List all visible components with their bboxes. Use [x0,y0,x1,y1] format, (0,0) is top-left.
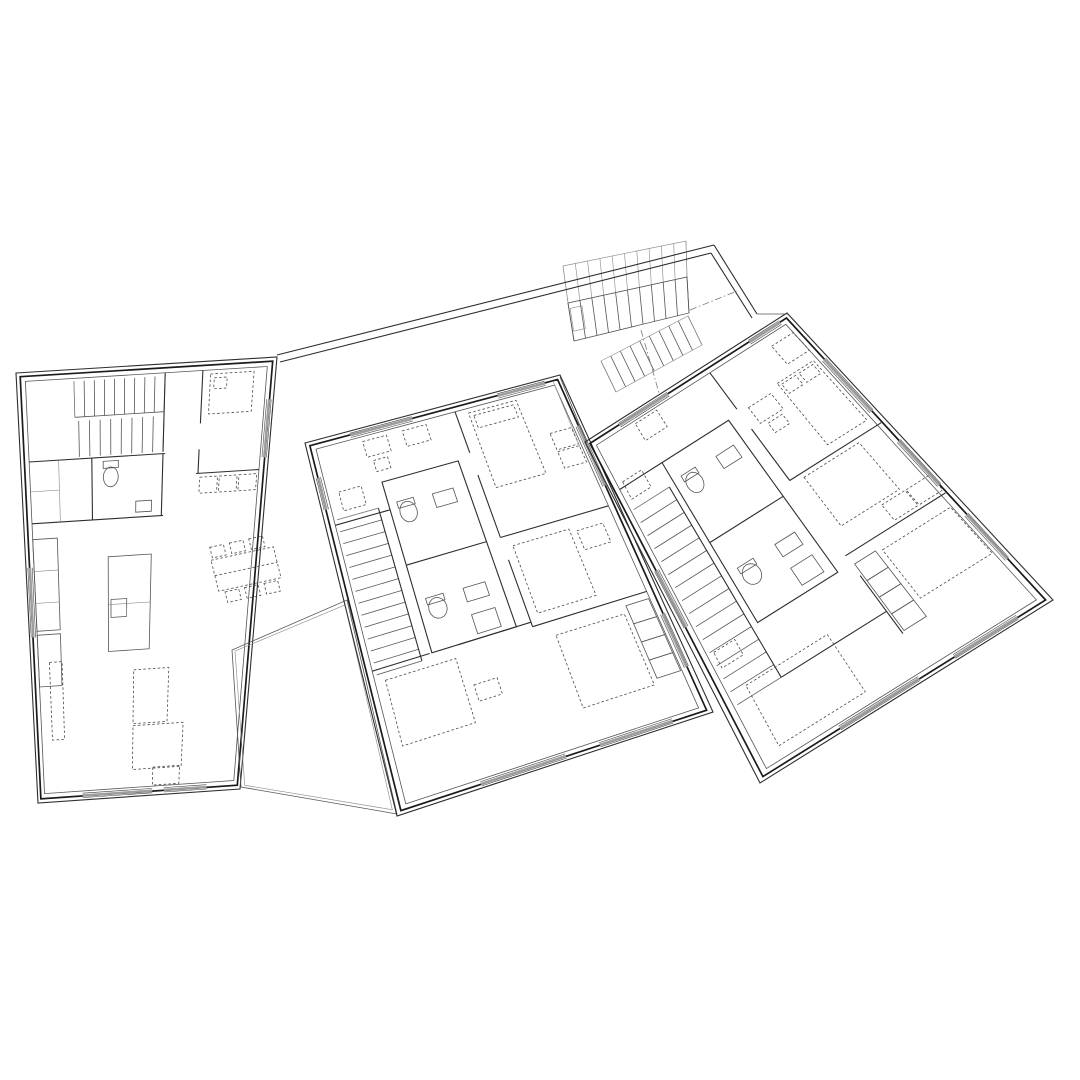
stair-treads [89,420,90,456]
fixture-rect [33,538,61,631]
window-band [480,754,565,782]
wall-line [690,291,737,310]
window-band [900,439,941,483]
wall-line [710,496,783,542]
wall-line [669,487,781,677]
fixture-rect [867,567,901,597]
stair-treads [730,665,773,692]
stair-treads [142,417,143,453]
window-band [600,723,673,747]
wall-line [29,454,165,463]
fixture-rect [775,532,803,557]
fixture-rect [386,659,476,747]
wall-line [714,245,757,314]
window-band [953,615,1016,654]
stair-treads [611,356,626,387]
floor-plan-page [0,0,1080,1080]
window-band [751,324,782,344]
fixture-rect [199,476,218,493]
wall-outline [590,318,1046,777]
fixture-rect [264,581,280,595]
window-band [599,719,672,743]
fixture-rect [626,599,657,624]
stair-treads [365,614,409,627]
wall-outline [20,361,273,799]
stair-treads [368,626,412,639]
wall-line [198,449,199,473]
window-band [83,791,153,796]
fixture-rect [432,488,457,508]
stair-treads [600,259,604,296]
fixture-rect [211,547,281,591]
stair-treads [575,264,580,301]
wall-line [74,381,75,417]
stair-treads [674,244,675,280]
wall-outline [596,324,1036,768]
stair-treads [724,652,767,679]
window-band [620,394,669,425]
fixture-rect [558,446,587,469]
wall-outline [232,600,397,814]
fixture-rect [49,662,64,741]
stair-treads [374,649,419,663]
window-band [897,442,938,486]
wall-line [32,515,163,523]
stair-treads [153,416,154,452]
window-band [618,392,667,423]
wall-line [710,373,737,409]
stair-treads [639,287,643,324]
wall-line [163,373,165,452]
north-facade-and-links [277,245,788,447]
wall-line [31,490,60,492]
fixture-rect [152,765,179,785]
fixture-rect [474,678,502,702]
fixture-rect [563,241,687,303]
window-band [840,678,919,728]
stair-treads [641,500,677,523]
dining-set [210,536,281,603]
window-band [750,323,781,343]
wall-outline [305,375,713,816]
fixture-rect [746,635,865,746]
fixture-rect [550,428,579,450]
fixture-rect [716,445,742,469]
stair-treads [359,590,402,603]
fixture-rect [570,306,585,331]
wall-line [560,377,587,443]
fixture-rect [214,377,228,389]
window-band [748,321,779,341]
wall-line [196,470,259,474]
fixture-rect [768,414,790,432]
stair-treads [343,532,385,544]
wall-line [161,454,163,516]
fixture-rect [737,558,757,574]
stair-treads [717,639,759,666]
stair-treads [154,376,155,412]
wall-line [36,602,60,604]
fixture-ellipse [400,501,418,522]
fixture-rect [382,461,516,653]
wall-line [215,562,277,575]
window-band [968,513,1009,557]
window-band [826,358,873,410]
fixture-rect [132,722,183,769]
stair-treads [592,298,597,336]
wall-line [337,508,378,520]
fixture-rect [777,361,867,445]
wall-line [34,570,58,572]
wall-line [641,330,659,393]
floor-plan-drawing [0,0,1080,1080]
stair-treads [637,251,640,287]
fixture-ellipse [429,598,448,619]
wall-line [553,381,580,447]
wall-line [634,487,670,510]
stair-hall-flight-upper [563,241,687,303]
fixture-rect [782,375,804,393]
stair-treads [616,293,620,330]
window-band [841,680,920,730]
stair-treads [620,351,635,382]
fixture-rect [225,589,241,603]
stair-treads [678,321,692,350]
wall-line [455,412,470,453]
stair-treads [737,677,781,705]
window-band [482,758,567,786]
fixture-rect [556,614,654,708]
stair-treads [630,346,645,376]
fixture-rect [108,554,151,652]
stair-treads [659,331,673,361]
window-band [621,396,670,427]
window-band [822,361,870,413]
terrace [232,600,397,814]
fixture-ellipse [103,467,118,487]
fixture-rect [136,500,152,512]
wall-line [752,429,790,481]
fixture-rect [662,420,838,622]
fixture-rect [474,405,519,428]
fixture-rect [882,490,918,520]
stair-treads [625,254,628,291]
stair-treads [362,602,406,615]
wall-outline [25,367,267,794]
wall-line [378,508,422,661]
stair-treads [661,246,663,282]
stair-treads [628,290,632,327]
fixture-rect [133,668,169,724]
fixture-rect [855,551,889,581]
stair-treads [144,377,145,413]
window-band [318,478,326,510]
stair-treads [661,538,699,562]
wall-line [280,253,711,362]
wall-line [108,602,150,605]
stair-treads [640,341,655,371]
stair-treads [79,421,80,457]
stair-treads [675,280,677,316]
stair-treads [349,555,391,567]
wall-line [277,245,714,355]
fixture-rect [513,529,596,613]
window-band [576,427,603,487]
wall-line [75,412,164,418]
wall-line [335,510,390,526]
wall-line [533,591,647,626]
window-band [966,515,1007,559]
window-band [350,419,412,436]
wall-line [509,560,533,627]
stair-treads [352,567,395,580]
wall-line [372,654,429,672]
stair-treads [346,543,388,555]
wall-line [620,463,662,490]
fixture-rect [37,634,62,687]
fixture-rect [374,457,391,472]
fixture-rect [748,393,783,423]
stair-treads [356,579,399,592]
fixture-rect [681,467,699,482]
fixture-rect [210,544,226,558]
fixture-rect [791,555,824,586]
wall-line [59,460,61,522]
wall-line [92,458,93,520]
stair-treads [649,336,664,366]
wall-outline [310,380,707,811]
unit-right-bedroom-plan [585,313,1053,783]
stair-treads [651,285,654,322]
window-band [600,721,673,745]
wall-outline [235,605,392,810]
stair-treads [649,249,651,285]
fixture-rect [238,474,257,491]
stair-treads [612,256,615,293]
fixture-rect [804,443,899,526]
stair-treads [648,512,685,535]
fixture-rect [229,540,245,554]
stair-treads [655,525,692,549]
fixture-rect [714,639,744,668]
stair-treads [703,614,744,640]
stair-treads [663,282,666,318]
window-band [264,399,269,457]
fixture-rect [577,523,611,550]
stair-treads [669,326,683,355]
fixture-rect [339,486,367,511]
wall-line [845,493,945,556]
window-band [481,756,566,784]
wall-line [458,622,531,645]
fixture-rect [111,599,127,618]
window-band [824,360,872,412]
unit-middle-bedroom-plan [305,375,713,816]
wall-line [711,253,752,318]
stair-treads [371,637,416,651]
fixture-rect [363,435,392,457]
stair-treads [604,295,609,332]
window-band [839,677,918,727]
window-band [899,441,940,485]
stair-hall-flight-main [568,277,689,341]
window-band [578,426,605,486]
fixture-rect [402,425,431,447]
wall-line [860,576,903,634]
wall-line [406,542,486,566]
fixture-rect [472,608,502,634]
window-band [955,619,1018,658]
fixture-rect [218,475,237,492]
stair-treads [710,627,752,653]
fixture-rect [568,277,689,341]
wall-line [200,371,203,424]
wall-outline [316,385,699,804]
stair-treads [84,381,85,417]
fixture-rect [463,582,490,602]
wall-line [790,423,882,481]
wall-line [500,506,608,538]
window-band [965,516,1006,560]
window-band [954,617,1017,656]
stair-treads [588,261,592,298]
